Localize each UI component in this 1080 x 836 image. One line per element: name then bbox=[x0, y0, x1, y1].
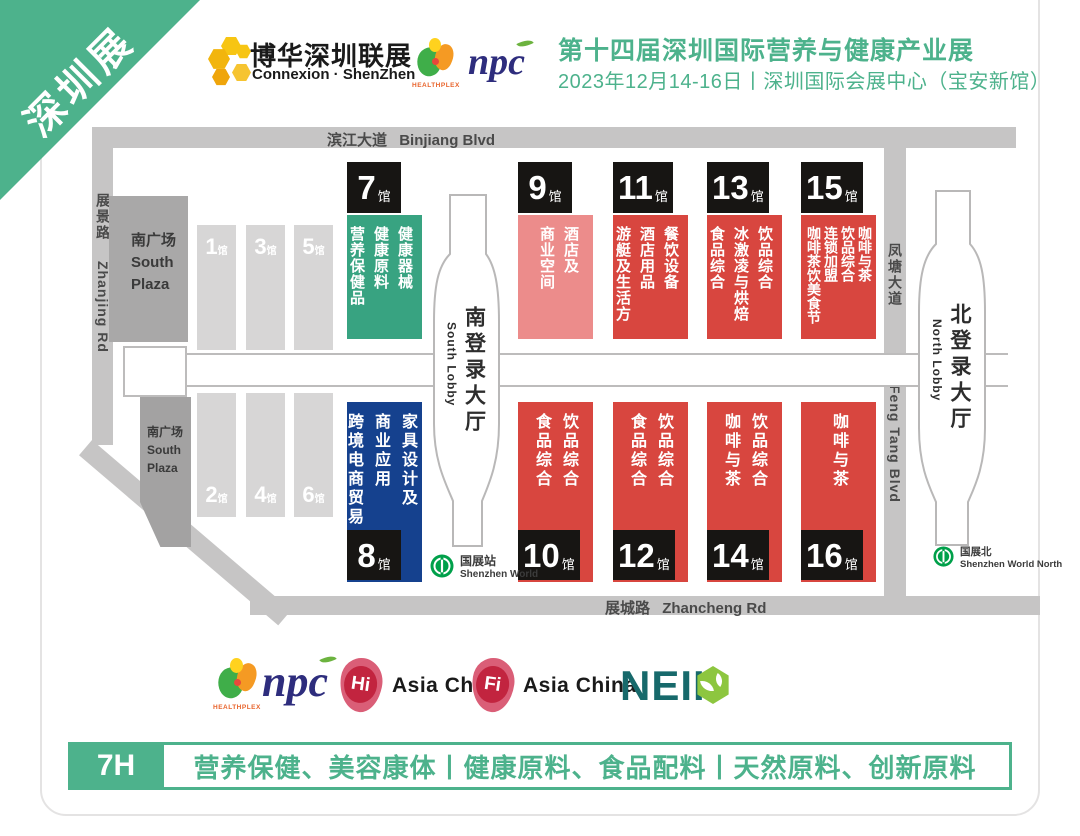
hall-1-label: 1馆 bbox=[197, 234, 236, 260]
hall-6-label: 6馆 bbox=[294, 482, 333, 508]
hall-11: 11馆 餐饮设备酒店用品游艇及生活方式 bbox=[613, 162, 688, 339]
metro-station-label: 国展站 Shenzhen World bbox=[460, 554, 538, 581]
npc-wordmark: npc bbox=[468, 41, 525, 83]
list-item-text: 酒店及 bbox=[560, 226, 580, 333]
list-item-text: South bbox=[147, 441, 191, 459]
hall-6: 6馆 bbox=[294, 393, 333, 517]
list-item-text: 南广场 bbox=[147, 423, 191, 441]
list-item-text: 南广场 bbox=[131, 230, 188, 252]
north-lobby-label: 北登录大厅 North Lobby bbox=[930, 303, 974, 433]
healthplex-wordmark: HEALTHPLEX bbox=[213, 704, 259, 711]
hall-7h-categories: 营养保健、美容康体丨健康原料、食品配料丨天然原料、创新原料 bbox=[71, 748, 1009, 785]
hall-5-label: 5馆 bbox=[294, 234, 333, 260]
road-zhancheng-rd: 展城路 Zhancheng Rd bbox=[250, 596, 1040, 615]
list-item-text: 食品综合 bbox=[706, 226, 726, 333]
south-lobby-label-cn: 南登录大厅 bbox=[459, 306, 489, 436]
metro-label-cn: 国展站 bbox=[460, 554, 538, 568]
dot-shape bbox=[432, 58, 439, 65]
list-item-text: 酒店用品 bbox=[636, 226, 656, 333]
road-label-en: Binjiang Blvd bbox=[399, 132, 495, 149]
south-lobby: 南登录大厅 South Lobby bbox=[433, 194, 500, 547]
hall-4: 4馆 bbox=[246, 393, 285, 517]
north-lobby-label-cn: 北登录大厅 bbox=[944, 303, 974, 433]
road-label: 滨江大道 Binjiang Blvd bbox=[327, 129, 495, 150]
hi-badge: Hi bbox=[342, 664, 380, 705]
hall-9-body: 酒店及商业空间 bbox=[518, 215, 593, 339]
hall-7h-banner: 7H 营养保健、美容康体丨健康原料、食品配料丨天然原料、创新原料 bbox=[68, 742, 1012, 790]
list-item-text: 营养保健品 bbox=[346, 226, 366, 333]
list-item-text: Plaza bbox=[131, 274, 188, 296]
metro-station-label: 国展北 Shenzhen World North bbox=[960, 546, 1062, 571]
list-item-text: 健康原料 bbox=[370, 226, 390, 333]
hall-14: 饮品综合咖啡与茶 14馆 bbox=[707, 402, 782, 582]
hall-11-body: 餐饮设备酒店用品游艇及生活方式 bbox=[613, 215, 688, 339]
connexion-hexagon-icon bbox=[208, 36, 256, 88]
healthplex-wordmark: HEALTHPLEX bbox=[412, 82, 458, 89]
list-item-text: 游艇及生活方式 bbox=[592, 226, 632, 333]
north-lobby-label-en: North Lobby bbox=[930, 319, 944, 433]
road-label-cn: 凤塘大道 bbox=[887, 243, 903, 307]
hexagon-shape bbox=[212, 68, 230, 86]
list-item-text: 商业空间 bbox=[536, 226, 556, 333]
south-lobby-label: 南登录大厅 South Lobby bbox=[445, 306, 489, 436]
dot-shape bbox=[234, 679, 241, 686]
hall-12: 饮品综合食品综合 12馆 bbox=[613, 402, 688, 582]
metro-station-shenzhen-world: 国展站 Shenzhen World bbox=[430, 554, 538, 581]
npc-logo: npc bbox=[468, 40, 525, 84]
healthplex-logo-footer: HEALTHPLEX bbox=[213, 658, 259, 711]
list-item-text: 咖啡与茶 bbox=[856, 226, 873, 333]
hall-2-label: 2馆 bbox=[197, 482, 236, 508]
hall-15-number: 15馆 bbox=[801, 162, 863, 213]
expo-date-venue: 2023年12月14-16日丨深圳国际会展中心（宝安新馆） bbox=[558, 65, 1050, 94]
hall-11-categories: 餐饮设备酒店用品游艇及生活方式 bbox=[615, 226, 680, 333]
metro-label-en: Shenzhen World bbox=[460, 568, 538, 581]
road-label-en: Feng Tang Blvd bbox=[887, 385, 903, 503]
metro-label-en: Shenzhen World North bbox=[960, 559, 1062, 571]
list-item-text: South bbox=[131, 252, 188, 274]
hall-7-number: 7馆 bbox=[347, 162, 401, 213]
metro-station-shenzhen-world-north: 国展北 Shenzhen World North bbox=[933, 546, 1062, 571]
list-item-text: 连锁加盟 bbox=[822, 226, 839, 333]
hall-7h-badge: 7H bbox=[68, 742, 164, 790]
list-item-text: 饮品综合 bbox=[754, 226, 774, 333]
hall-7-categories: 健康器械健康原料营养保健品 bbox=[349, 226, 414, 333]
road-label-cn: 展城路 bbox=[605, 600, 650, 617]
expo-title: 第十四届深圳国际营养与健康产业展 bbox=[558, 31, 974, 67]
leaf-shape bbox=[712, 673, 726, 687]
npc-wordmark: npc bbox=[262, 657, 328, 706]
hall-5: 5馆 bbox=[294, 225, 333, 350]
road-binjiang-blvd: 滨江大道 Binjiang Blvd bbox=[92, 127, 1016, 148]
hall-7-body: 健康器械健康原料营养保健品 bbox=[347, 215, 422, 339]
fi-badge: Fi bbox=[474, 664, 512, 705]
neii-wordmark: NEII bbox=[620, 662, 706, 710]
list-item-text: 健康器械 bbox=[394, 226, 414, 333]
south-plaza-label: 南广场SouthPlaza bbox=[131, 230, 188, 295]
hall-11-number: 11馆 bbox=[613, 162, 673, 213]
hall-13-body: 饮品综合冰激凌与烘焙食品综合 bbox=[707, 215, 782, 339]
south-lobby-label-en: South Lobby bbox=[445, 322, 459, 436]
leaf-shape bbox=[230, 658, 243, 673]
hall-15: 15馆 咖啡与茶饮品综合连锁加盟咖啡茶饮美食节 bbox=[801, 162, 876, 339]
list-item-text: Plaza bbox=[147, 459, 191, 477]
hall-9-number: 9馆 bbox=[518, 162, 572, 213]
leaf-shape bbox=[429, 38, 441, 52]
expo-flyer: 深圳展 博华深圳联展 Connexion · ShenZhen HEALTHPL… bbox=[0, 0, 1080, 836]
leaf-shape bbox=[700, 679, 714, 693]
south-plaza-upper: 南广场SouthPlaza bbox=[109, 196, 188, 342]
hall-8-number: 8馆 bbox=[347, 530, 401, 580]
central-concourse bbox=[186, 353, 1008, 387]
metro-label-cn: 国展北 bbox=[960, 546, 1062, 559]
hall-2: 2馆 bbox=[197, 393, 236, 517]
hall-8: 家具设计及商业应用跨境电商贸易 8馆 bbox=[347, 402, 422, 582]
hall-14-number: 14馆 bbox=[707, 530, 769, 580]
north-lobby: 北登录大厅 North Lobby bbox=[918, 190, 986, 546]
hall-13: 13馆 饮品综合冰激凌与烘焙食品综合 bbox=[707, 162, 782, 339]
hall-9: 9馆 酒店及商业空间 bbox=[518, 162, 593, 339]
south-plaza-label: 南广场SouthPlaza bbox=[147, 423, 191, 477]
hexagon-shape bbox=[232, 63, 251, 82]
metro-icon bbox=[430, 554, 454, 578]
list-item-text: 冰激凌与烘焙 bbox=[730, 226, 750, 333]
list-item-text: 咖啡茶饮美食节 bbox=[805, 226, 822, 333]
metro-icon bbox=[933, 546, 954, 567]
west-entrance-block bbox=[123, 346, 187, 397]
hall-7: 7馆 健康器械健康原料营养保健品 bbox=[347, 162, 422, 339]
hall-9-categories: 酒店及商业空间 bbox=[520, 226, 580, 333]
hall-1: 1馆 bbox=[197, 225, 236, 350]
hall-16-number: 16馆 bbox=[801, 530, 863, 580]
hall-13-number: 13馆 bbox=[707, 162, 769, 213]
hall-16: 咖啡与茶 16馆 bbox=[801, 402, 876, 582]
hall-3: 3馆 bbox=[246, 225, 285, 350]
healthplex-icon bbox=[214, 658, 258, 702]
list-item-text: 饮品综合 bbox=[839, 226, 856, 333]
hall-15-categories: 咖啡与茶饮品综合连锁加盟咖啡茶饮美食节 bbox=[803, 226, 873, 333]
healthplex-icon bbox=[413, 38, 457, 80]
road-label-en: Zhancheng Rd bbox=[662, 600, 766, 617]
hall-12-number: 12馆 bbox=[613, 530, 675, 580]
npc-logo-footer: npc bbox=[262, 656, 328, 707]
road-label-cn: 滨江大道 bbox=[327, 132, 387, 149]
road-label: 凤塘大道 Feng Tang Blvd bbox=[885, 127, 905, 731]
road-label: 展城路 Zhancheng Rd bbox=[605, 597, 766, 618]
hall-13-categories: 饮品综合冰激凌与烘焙食品综合 bbox=[709, 226, 774, 333]
hall-4-label: 4馆 bbox=[246, 482, 285, 508]
hall-15-body: 咖啡与茶饮品综合连锁加盟咖啡茶饮美食节 bbox=[801, 215, 876, 339]
hall-3-label: 3馆 bbox=[246, 234, 285, 260]
brand-name-en: Connexion · ShenZhen bbox=[252, 66, 415, 83]
healthplex-logo: HEALTHPLEX bbox=[412, 38, 458, 89]
list-item-text: 餐饮设备 bbox=[660, 226, 680, 333]
